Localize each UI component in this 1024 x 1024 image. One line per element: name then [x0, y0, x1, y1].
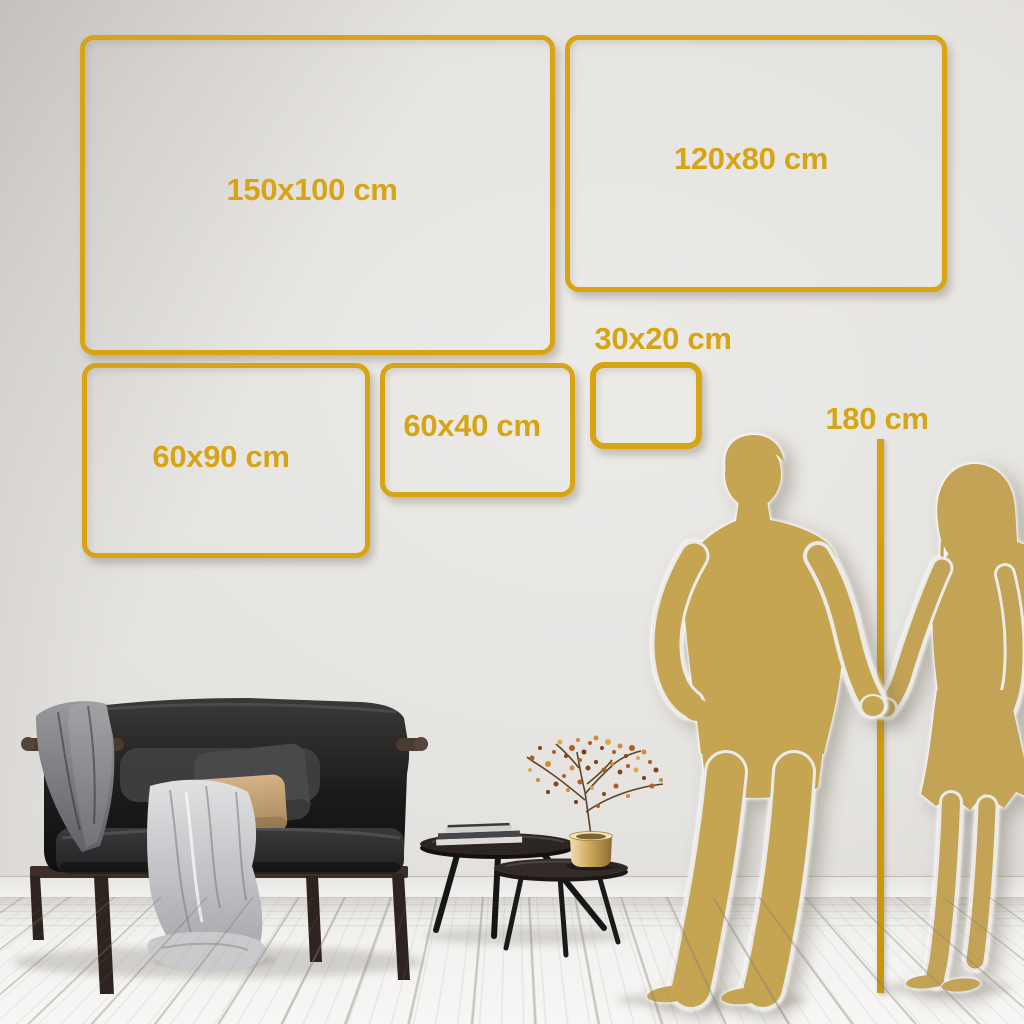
man-left-leg [691, 772, 726, 988]
sofa [21, 698, 428, 994]
size-frame-30x20 [590, 362, 702, 449]
height-marker-label: 180 cm [825, 401, 928, 437]
size-guide-scene: 150x100 cm 120x80 cm 60x90 cm 60x40 cm 3… [0, 0, 1024, 1024]
size-label-150x100: 150x100 cm [226, 172, 397, 208]
branches [527, 744, 663, 836]
books [436, 822, 523, 845]
woman-left-leg [935, 802, 951, 978]
size-label-120x80: 120x80 cm [674, 141, 828, 177]
man-right-leg [763, 772, 794, 988]
woman-head [949, 480, 993, 534]
man-silhouette [646, 435, 887, 1007]
size-label-30x20: 30x20 cm [594, 321, 731, 357]
woman-silhouette [874, 464, 1024, 993]
size-label-60x40: 60x40 cm [403, 408, 540, 444]
woman-skirt [921, 690, 1024, 810]
man-hand [862, 696, 884, 716]
light-blanket [147, 780, 267, 971]
size-label-60x90: 60x90 cm [152, 439, 289, 475]
